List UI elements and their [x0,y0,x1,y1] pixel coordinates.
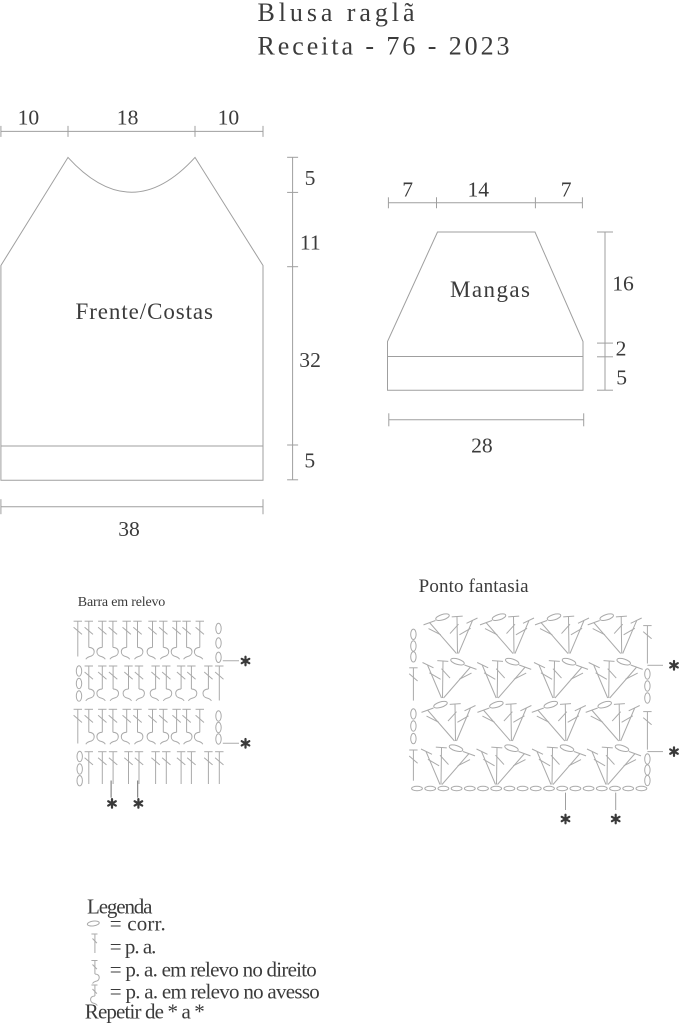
svg-text:5: 5 [616,365,627,389]
svg-text:11: 11 [300,230,321,254]
svg-text:10: 10 [218,105,240,129]
svg-text:18: 18 [117,105,139,129]
svg-text:7: 7 [402,177,413,201]
svg-text:5: 5 [305,166,316,190]
svg-text:10: 10 [18,105,40,129]
svg-text:Frente/Costas: Frente/Costas [76,299,214,324]
svg-text:16: 16 [612,271,634,295]
svg-text:5: 5 [304,449,315,473]
svg-text:= p. a. em relevo no direito: = p. a. em relevo no direito [110,958,317,982]
svg-text:Repetir de * a *: Repetir de * a * [85,1000,205,1024]
svg-text:Blusa raglã: Blusa raglã [258,0,415,27]
svg-text:2: 2 [616,336,627,360]
svg-text:= corr.: = corr. [110,912,166,936]
svg-text:Ponto fantasia: Ponto fantasia [419,576,530,597]
svg-text:Mangas: Mangas [450,277,530,302]
svg-text:Barra em relevo: Barra em relevo [78,595,166,610]
svg-text:38: 38 [118,517,140,541]
svg-text:= p. a.: = p. a. [110,935,157,959]
svg-text:14: 14 [468,177,490,201]
svg-text:28: 28 [471,434,493,458]
svg-text:7: 7 [561,177,572,201]
svg-text:32: 32 [299,348,321,372]
